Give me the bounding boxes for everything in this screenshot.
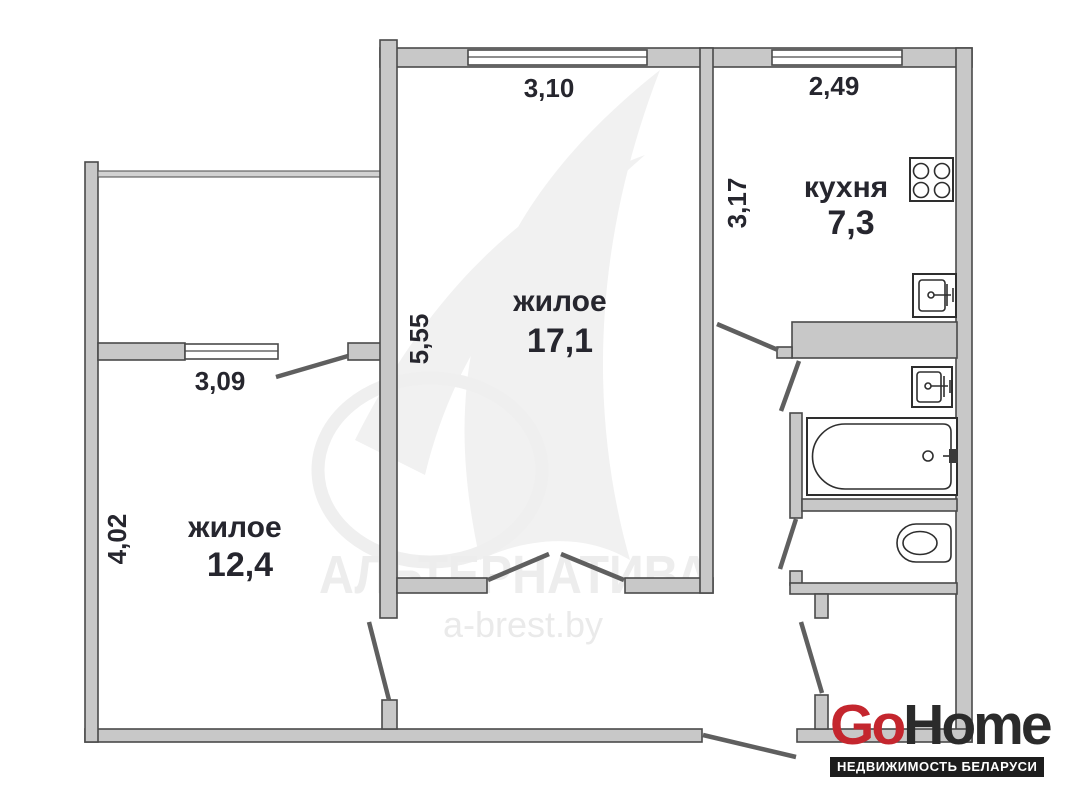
wall-kitchen-door-stub — [777, 347, 792, 358]
door-balcony — [276, 356, 348, 377]
watermark-site: a-brest.by — [443, 604, 603, 645]
wall-bath-toilet-divider — [802, 499, 957, 511]
gohome-logo: GoHome НЕДВИЖИМОСТЬ БЕЛАРУСИ — [830, 696, 1050, 777]
gohome-home: Home — [903, 693, 1049, 757]
wall-center-kitchen — [700, 48, 713, 593]
watermark-brand: АЛЬТЕРНАТИВА — [319, 545, 711, 605]
room-living-main-label: жилое — [512, 285, 606, 318]
door-closet — [801, 622, 822, 693]
stove-icon — [910, 158, 953, 201]
wall-center-left — [380, 40, 397, 618]
wall-center-left-stub — [382, 700, 397, 729]
toilet-icon — [897, 524, 951, 562]
wall-leftroom-top-b — [348, 343, 382, 360]
dim-living-second-width: 3,09 — [195, 366, 246, 396]
floor-plan: АЛЬТЕРНАТИВА a-brest.by — [0, 0, 1068, 800]
door-living-second — [369, 622, 389, 700]
room-living-second-area: 12,4 — [207, 546, 273, 584]
wall-bath-left — [790, 413, 802, 518]
room-living-main-area: 17,1 — [527, 322, 593, 360]
dim-kitchen-depth: 3,17 — [722, 178, 752, 229]
door-bathroom — [781, 361, 799, 411]
kitchen-sink-icon — [913, 274, 956, 317]
balcony-rail — [98, 171, 382, 177]
bathroom-sink-icon — [912, 367, 952, 407]
door-kitchen — [717, 324, 778, 350]
door-toilet — [780, 519, 796, 569]
gohome-wordmark: GoHome — [830, 696, 1050, 756]
wall-right — [956, 48, 972, 742]
wall-bottom-left — [85, 729, 702, 742]
bathtub-icon — [807, 418, 958, 495]
dim-living-main-depth: 5,55 — [404, 314, 434, 365]
wall-left — [85, 162, 98, 742]
dim-living-main-width: 3,10 — [524, 73, 575, 103]
wall-leftroom-top-a — [98, 343, 185, 360]
room-living-second-label: жилое — [187, 511, 281, 544]
gohome-tagline: НЕДВИЖИМОСТЬ БЕЛАРУСИ — [830, 757, 1044, 777]
room-kitchen-label: кухня — [804, 171, 888, 204]
window-living-main — [468, 50, 647, 65]
wall-toilet-bottom — [790, 583, 957, 594]
window-kitchen — [772, 50, 902, 65]
wall-closet-stub-bottom — [815, 695, 828, 729]
window-living-second — [185, 344, 278, 359]
wall-closet-stub-top — [815, 594, 828, 618]
door-entrance — [703, 735, 796, 757]
wall-kitchen-bath — [792, 322, 957, 358]
dim-living-second-depth: 4,02 — [102, 514, 132, 565]
room-kitchen-area: 7,3 — [827, 204, 874, 242]
gohome-go: Go — [830, 693, 903, 757]
dim-kitchen-width: 2,49 — [809, 71, 860, 101]
wall-center-bottom-a — [397, 578, 487, 593]
